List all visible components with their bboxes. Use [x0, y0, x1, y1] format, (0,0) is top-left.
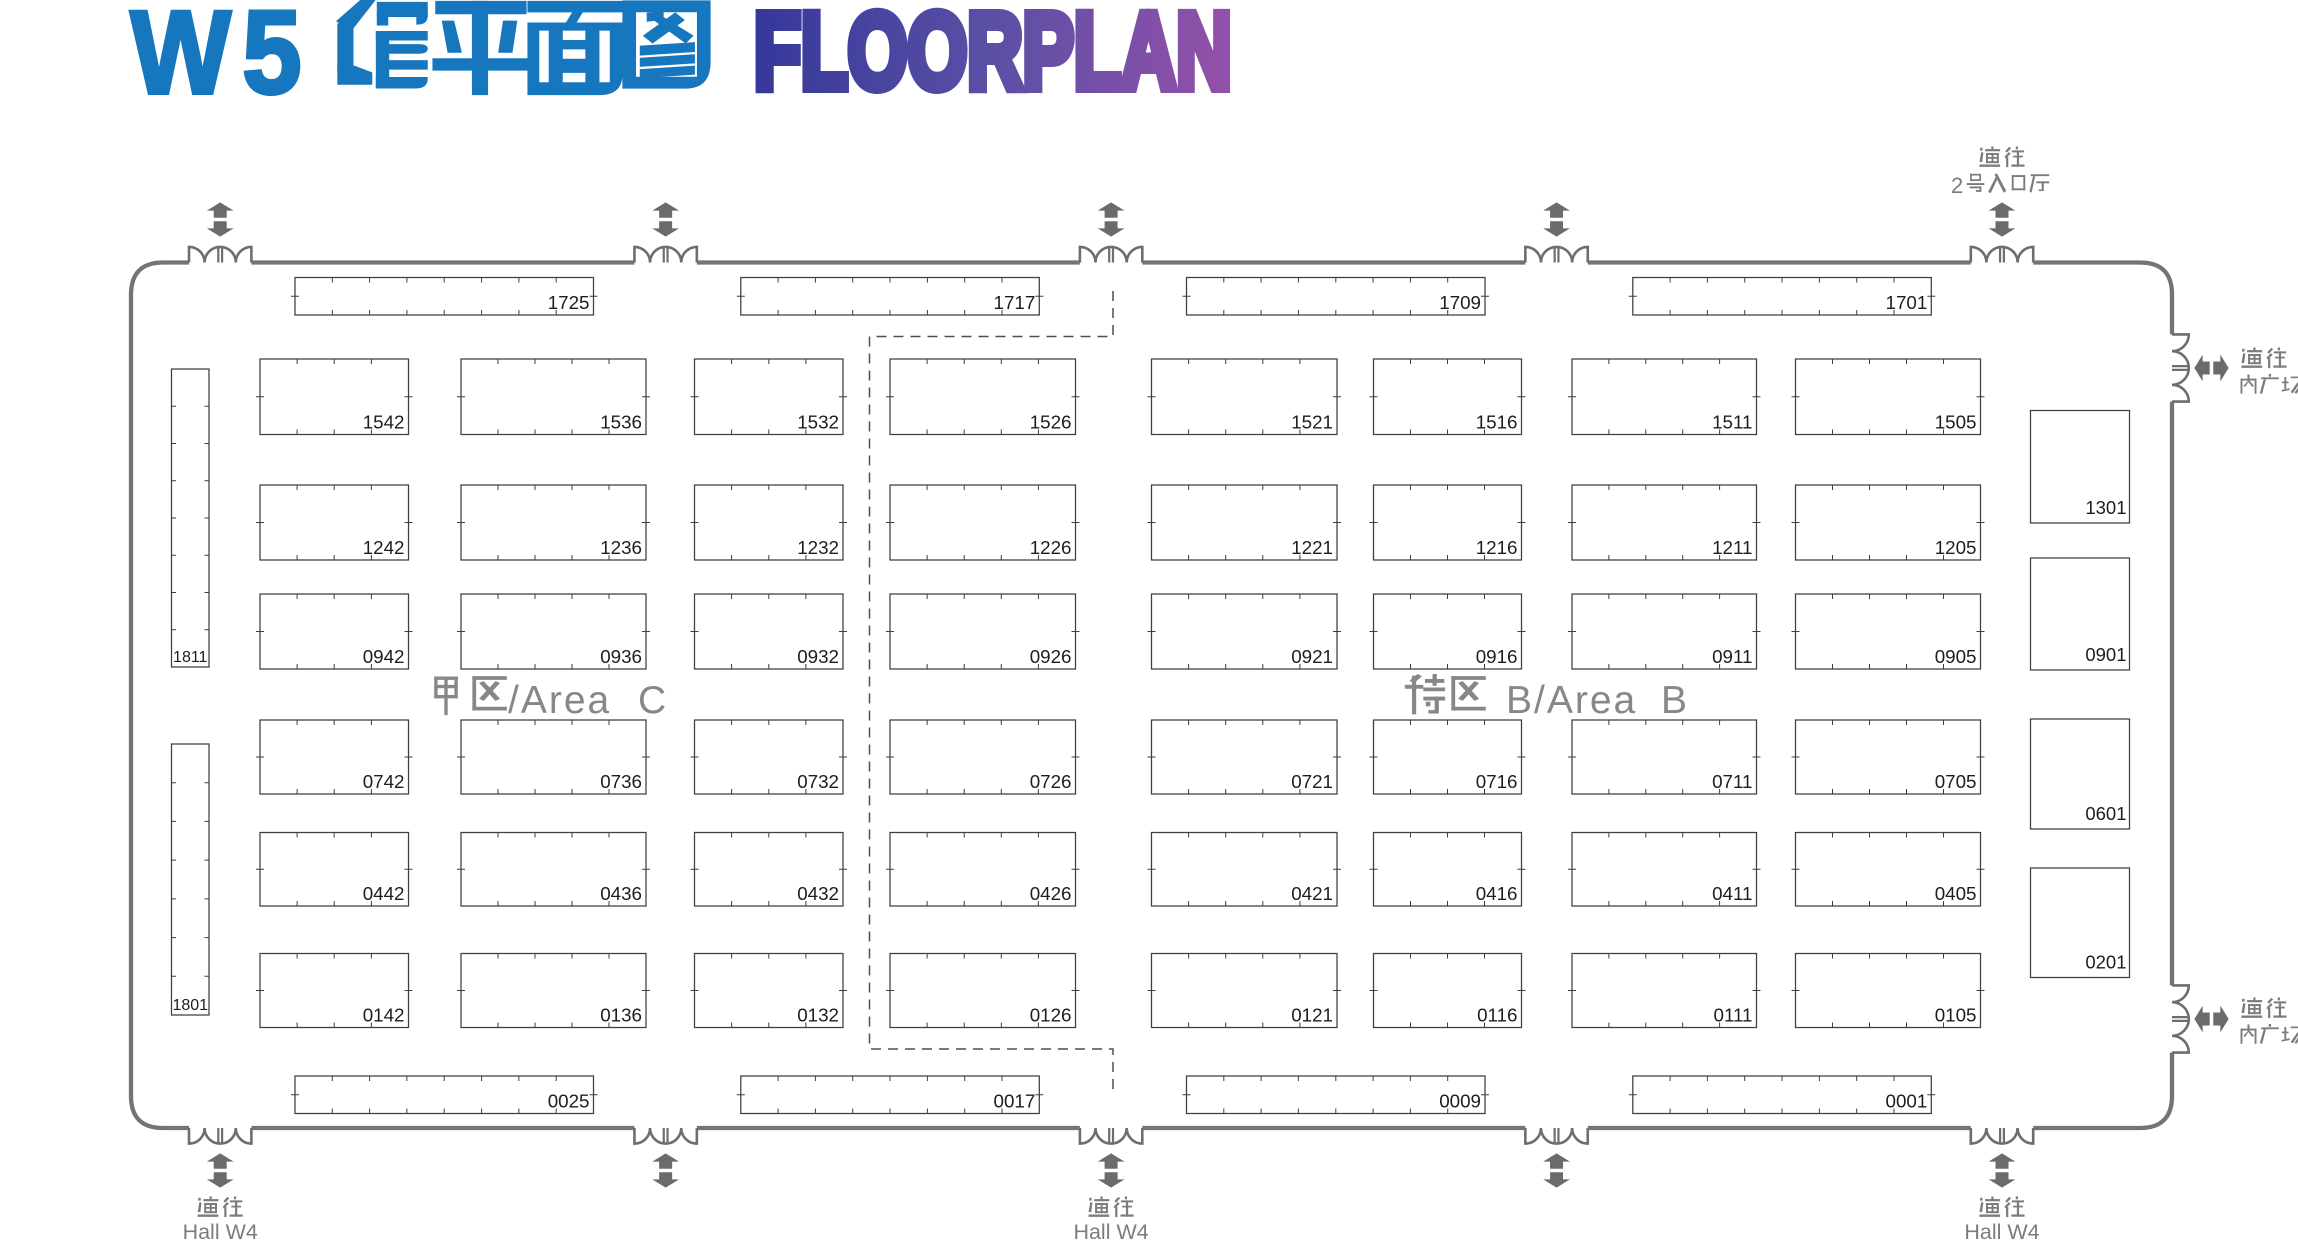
svg-text:Hall W4: Hall W4	[1073, 1220, 1148, 1241]
svg-text:B/Area: B/Area	[1506, 679, 1637, 722]
svg-text:0009: 0009	[1439, 1091, 1481, 1112]
svg-text:1301: 1301	[2085, 497, 2126, 518]
svg-text:0405: 0405	[1935, 883, 1977, 904]
svg-text:1526: 1526	[1030, 412, 1072, 433]
svg-text:1516: 1516	[1476, 412, 1518, 433]
svg-text:1232: 1232	[797, 537, 839, 558]
svg-text:0432: 0432	[797, 883, 839, 904]
svg-text:0736: 0736	[600, 771, 642, 792]
svg-text:0721: 0721	[1291, 771, 1333, 792]
svg-text:0716: 0716	[1476, 771, 1518, 792]
svg-text:Hall W4: Hall W4	[183, 1220, 258, 1241]
svg-text:0442: 0442	[363, 883, 405, 904]
svg-text:B: B	[1661, 679, 1687, 722]
svg-text:0705: 0705	[1935, 771, 1977, 792]
svg-text:1725: 1725	[548, 292, 590, 313]
svg-text:0201: 0201	[2085, 952, 2126, 973]
svg-text:1521: 1521	[1291, 412, 1333, 433]
svg-text:1811: 1811	[173, 649, 208, 666]
svg-text:0105: 0105	[1935, 1005, 1977, 1026]
svg-text:0025: 0025	[548, 1091, 590, 1112]
svg-text:0732: 0732	[797, 771, 839, 792]
svg-text:0926: 0926	[1030, 646, 1072, 667]
svg-text:0911: 0911	[1712, 646, 1752, 667]
svg-text:1205: 1205	[1935, 537, 1977, 558]
svg-text:0905: 0905	[1935, 646, 1977, 667]
svg-text:0132: 0132	[797, 1005, 839, 1026]
svg-text:0942: 0942	[363, 646, 405, 667]
svg-text:1221: 1221	[1291, 537, 1333, 558]
svg-text:0126: 0126	[1030, 1005, 1072, 1026]
svg-text:0001: 0001	[1886, 1091, 1928, 1112]
svg-text:FLOORPLAN: FLOORPLAN	[754, 0, 1232, 111]
svg-text:0116: 0116	[1477, 1005, 1517, 1026]
svg-text:0142: 0142	[363, 1005, 405, 1026]
svg-text:1532: 1532	[797, 412, 839, 433]
svg-text:C: C	[638, 679, 666, 722]
svg-text:0136: 0136	[600, 1005, 642, 1026]
svg-text:0121: 0121	[1291, 1005, 1333, 1026]
svg-text:1211: 1211	[1712, 537, 1752, 558]
svg-text:1717: 1717	[994, 292, 1036, 313]
svg-text:0601: 0601	[2085, 803, 2126, 824]
svg-text:0426: 0426	[1030, 883, 1072, 904]
svg-text:1511: 1511	[1712, 412, 1752, 433]
svg-text:W5: W5	[131, 0, 314, 118]
svg-text:/Area: /Area	[508, 679, 611, 722]
svg-text:1236: 1236	[600, 537, 642, 558]
svg-text:1226: 1226	[1030, 537, 1072, 558]
svg-text:0711: 0711	[1712, 771, 1752, 792]
svg-text:1216: 1216	[1476, 537, 1518, 558]
svg-text:0111: 0111	[1714, 1005, 1753, 1026]
svg-text:0742: 0742	[363, 771, 405, 792]
svg-text:0901: 0901	[2085, 644, 2126, 665]
svg-text:2: 2	[1951, 173, 1963, 198]
svg-text:0436: 0436	[600, 883, 642, 904]
svg-text:0936: 0936	[600, 646, 642, 667]
svg-text:1536: 1536	[600, 412, 642, 433]
svg-text:0916: 0916	[1476, 646, 1518, 667]
svg-text:0416: 0416	[1476, 883, 1518, 904]
svg-text:0726: 0726	[1030, 771, 1072, 792]
svg-text:0421: 0421	[1291, 883, 1333, 904]
svg-text:1242: 1242	[363, 537, 405, 558]
svg-text:1801: 1801	[172, 997, 208, 1014]
svg-text:0017: 0017	[994, 1091, 1036, 1112]
svg-text:0932: 0932	[797, 646, 839, 667]
svg-text:0411: 0411	[1712, 883, 1752, 904]
svg-text:Hall W4: Hall W4	[1964, 1220, 2039, 1241]
svg-text:1701: 1701	[1886, 292, 1928, 313]
svg-text:0921: 0921	[1291, 646, 1333, 667]
svg-text:1542: 1542	[363, 412, 405, 433]
svg-text:1709: 1709	[1439, 292, 1481, 313]
svg-text:1505: 1505	[1935, 412, 1977, 433]
